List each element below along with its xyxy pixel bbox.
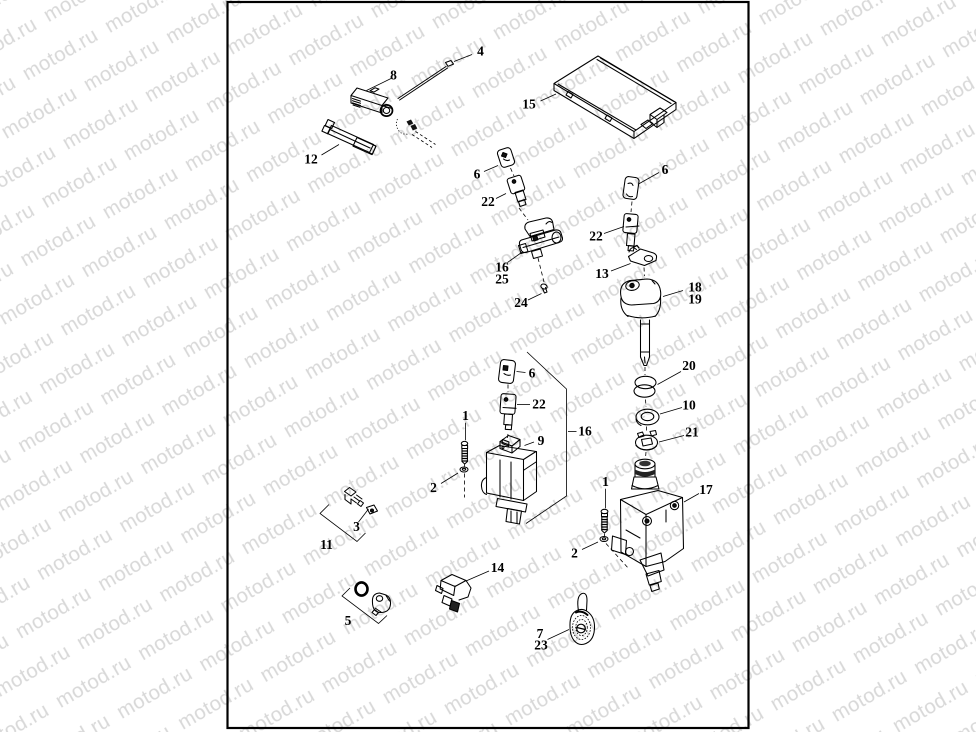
svg-text:14: 14	[491, 560, 505, 575]
svg-text:21: 21	[685, 425, 699, 440]
svg-text:6: 6	[529, 366, 536, 381]
svg-text:15: 15	[522, 97, 536, 112]
svg-text:6: 6	[662, 162, 669, 177]
svg-text:13: 13	[595, 266, 609, 281]
svg-text:9: 9	[538, 433, 545, 448]
svg-text:24: 24	[514, 295, 528, 310]
svg-text:4: 4	[477, 44, 484, 59]
svg-text:22: 22	[589, 229, 603, 244]
svg-text:2: 2	[571, 546, 578, 561]
svg-text:19: 19	[688, 292, 702, 307]
svg-text:23: 23	[534, 638, 548, 653]
svg-text:2: 2	[430, 480, 437, 495]
svg-text:22: 22	[532, 397, 546, 412]
svg-text:22: 22	[481, 194, 495, 209]
svg-text:1: 1	[462, 408, 469, 423]
svg-text:25: 25	[495, 272, 509, 287]
svg-text:8: 8	[390, 68, 397, 83]
svg-text:20: 20	[682, 358, 696, 373]
svg-text:3: 3	[353, 519, 360, 534]
svg-text:12: 12	[304, 152, 318, 167]
svg-text:1: 1	[602, 474, 609, 489]
svg-text:17: 17	[699, 482, 713, 497]
svg-text:16: 16	[578, 424, 592, 439]
svg-text:5: 5	[345, 613, 352, 628]
svg-text:10: 10	[682, 398, 696, 413]
svg-text:11: 11	[320, 537, 333, 552]
svg-text:6: 6	[474, 167, 481, 182]
